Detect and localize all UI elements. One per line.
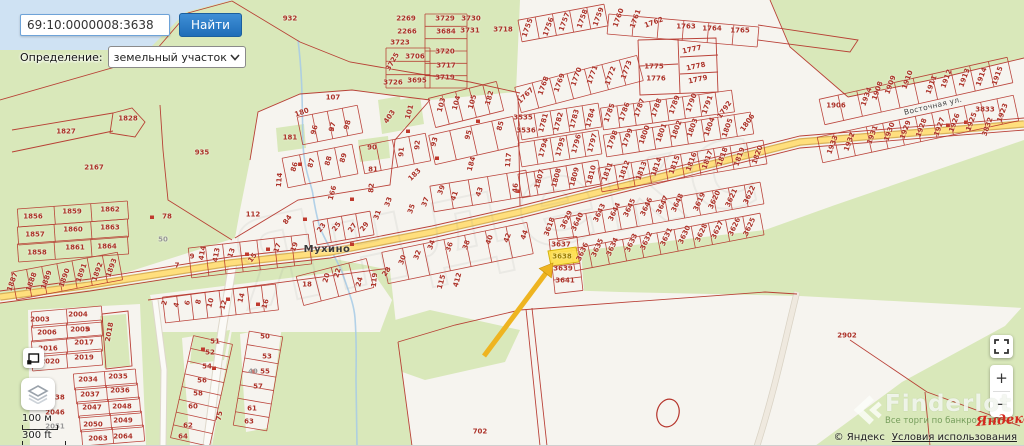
parcel-label: 1790	[685, 93, 698, 114]
parcel-label: 1809	[569, 167, 581, 188]
parcel-label: 3621	[725, 188, 740, 209]
parcel-label: 1794	[538, 138, 550, 159]
parcel-label: 932	[283, 16, 298, 23]
parcel-label: 1887	[6, 272, 19, 293]
parcel-label: 2047	[82, 405, 101, 412]
parcel-label: 35	[407, 203, 417, 215]
parcel-label: 27	[347, 222, 358, 234]
finderlot-watermark: Finderlot Все торги по банкротству	[851, 393, 1012, 427]
parcel-label: 56	[197, 378, 207, 385]
parcel-label: 1797	[587, 133, 599, 154]
parcel-label: 1806	[740, 113, 757, 133]
parcel-label: 1926	[948, 113, 961, 134]
parcel-label: 3632	[640, 231, 655, 252]
parcel-label: 2063	[88, 436, 107, 443]
parcel-label: 2048	[112, 404, 131, 411]
streets	[155, 262, 797, 446]
parcel-label: 114	[276, 172, 284, 187]
parcel-label: 1758	[576, 9, 589, 30]
parcel-label: 2034	[78, 377, 97, 384]
parcel-label: 1914	[975, 67, 988, 88]
parcel-label: 82	[368, 183, 376, 193]
pointer-arrow	[484, 263, 553, 356]
parcel-label: 1857	[25, 232, 44, 239]
parcel-label: 50	[260, 334, 270, 341]
parcel-label: 40	[485, 234, 495, 246]
open-land-patches	[28, 235, 584, 446]
parcel-label: 1804	[703, 117, 716, 138]
parcel-label: 3628	[695, 223, 710, 244]
parcel-label: 180	[294, 107, 310, 119]
parcel-label: 1858	[27, 250, 46, 257]
parcel-label: 3625	[743, 217, 758, 238]
parcel-label: 1856	[23, 214, 42, 221]
parcel-label: 29	[359, 221, 370, 233]
finderlot-tagline: Все торги по банкротству	[885, 416, 1012, 426]
parcel-label: 2902	[837, 333, 856, 340]
parcel-label: 1785	[603, 103, 616, 124]
parcel-label: 3646	[640, 197, 655, 218]
parcel-label: 88	[324, 155, 333, 166]
parcel-label: 1776	[646, 76, 665, 83]
parcel-label: 86	[290, 161, 299, 172]
scale-bar-metric	[22, 425, 58, 430]
stream	[298, 40, 357, 446]
scale-control: 100 м 300 ft	[22, 414, 66, 446]
terms-link[interactable]: Условия использования	[892, 432, 1017, 443]
parcel-label: 1783	[569, 109, 581, 130]
parcel-label: 60	[188, 404, 198, 411]
parcel-label: 96	[310, 124, 319, 135]
parcel-label: 51	[210, 339, 220, 346]
parcel-label: 412	[453, 272, 464, 288]
parcel-label: 1805	[721, 118, 734, 139]
parcel-label: 3719	[435, 75, 454, 82]
parcel-label: 1815	[668, 155, 681, 176]
parcel-label: 30	[398, 254, 408, 266]
parcel-label: 6	[184, 300, 192, 307]
parcel-label: 3706	[405, 54, 424, 61]
parcel-label: 1787	[633, 98, 646, 119]
parcel-label: 1934	[860, 87, 873, 108]
fullscreen-button[interactable]	[990, 335, 1013, 358]
parcel-label: 1813	[635, 161, 648, 182]
parcel-label: 182	[485, 90, 496, 106]
parcel-label: 1801	[655, 123, 668, 144]
parcel-label: 28	[381, 266, 392, 278]
parcel-label: 1908	[871, 81, 884, 102]
parcel-label: 49	[248, 369, 258, 376]
parcel-label: 87	[307, 157, 316, 168]
parcel-label: 2018	[105, 322, 115, 342]
parcel-label: 34	[427, 239, 437, 251]
main-road	[0, 124, 1024, 297]
measure-icon	[26, 351, 41, 366]
parcel-label: 3833	[975, 107, 994, 114]
parcel-label: 115	[437, 274, 448, 290]
parcel-label: 3634	[606, 237, 621, 258]
parcel-label: 1777	[682, 45, 703, 56]
parcel-label: 1862	[100, 207, 119, 214]
parcel-label: 90	[367, 145, 377, 152]
parcel-label: 1933	[826, 135, 839, 156]
parcel-label: 10	[206, 297, 215, 308]
parcel-label: 1775	[644, 64, 663, 71]
parcel-label: 37	[421, 196, 431, 208]
parcel-label: 101	[405, 104, 416, 120]
parcel-label: 3637	[551, 242, 570, 249]
parcel-label: 7	[175, 263, 180, 270]
buildings	[86, 120, 968, 374]
parcel-label: 1788	[650, 98, 663, 119]
parcel-label: 1812	[618, 160, 631, 181]
parcel-label: 1861	[65, 245, 84, 252]
definition-row: Определение: земельный участок	[20, 46, 246, 68]
parcel-label: 78	[162, 214, 172, 221]
parcel-label: 1932	[843, 132, 856, 153]
parcel-label: 3631	[660, 227, 675, 248]
town-label: Мухино	[304, 245, 351, 255]
parcel-label: 22	[333, 267, 342, 278]
highlighted-parcel-label: 3638	[552, 254, 571, 261]
parcel-label: 119	[371, 272, 379, 287]
parcel-label: 3640	[571, 212, 586, 233]
measure-area-button[interactable]	[23, 348, 44, 368]
parcel-label: 1800	[638, 125, 651, 146]
parcel-label: 1786	[618, 102, 631, 123]
parcel-label: 32	[413, 249, 423, 261]
parcel-label: 24	[355, 276, 364, 287]
parcel-label: 1803	[686, 118, 699, 139]
definition-label: Определение:	[20, 51, 103, 64]
parcel-label: 3647	[656, 195, 671, 216]
parcel-label: 2	[161, 300, 169, 307]
parcel-label: 3725	[385, 52, 401, 72]
parcel-label: 1756	[542, 17, 555, 38]
parcel-label: 1770	[570, 67, 583, 88]
parcel-label: 3639	[553, 266, 572, 273]
parcel-label: 1906	[826, 103, 845, 110]
chevron-down-icon	[230, 54, 240, 61]
parcel-label: 2036	[110, 388, 129, 395]
zoom-out-button[interactable]: −	[990, 392, 1013, 418]
parcel-label: 112	[246, 212, 261, 219]
parcel-label: 2049	[113, 418, 132, 425]
map-watermark: Яндекс	[217, 91, 776, 340]
parcel-label: 58	[193, 391, 203, 398]
parcel-label: 1860	[63, 227, 82, 234]
parcel-label: 92	[414, 140, 422, 150]
parcel-label: 3723	[390, 40, 409, 47]
parcel-label: 414	[198, 245, 207, 261]
parcel-label: 1819	[733, 147, 746, 168]
parcel-label: 1827	[56, 129, 75, 136]
parcel-label: 3695	[407, 78, 426, 85]
parcel-label: 2006	[37, 330, 56, 337]
parcel-label: 13	[227, 247, 237, 259]
parcel-label: 1755	[521, 18, 534, 39]
parcel-label: 64	[178, 434, 188, 441]
attribution-bar: © Яндекс Условия использования	[834, 432, 1017, 443]
parcel-label: 3635	[591, 238, 606, 259]
parcel-label: 14	[237, 292, 246, 303]
parcel-label: 2003	[30, 317, 49, 324]
parcel-label: 3633	[625, 233, 640, 254]
parcel-label: 3627	[711, 220, 726, 241]
parcel-label: 1909	[884, 75, 897, 96]
parcel-label: 9	[190, 254, 195, 261]
parcel-label: 2050	[83, 422, 102, 429]
parcel-label: 104	[452, 95, 463, 111]
parcel-label: 1817	[701, 150, 714, 171]
parcel-label: 1771	[586, 65, 599, 86]
parcel-label: 1915	[991, 66, 1004, 87]
parcel-label: 97	[328, 121, 337, 132]
parcel-label: 1928	[915, 118, 928, 139]
parcel-label: 3641	[555, 278, 574, 285]
parcel-label: 105	[468, 94, 479, 110]
parcel-label: 1859	[62, 209, 81, 216]
parcel-label: 184	[467, 156, 478, 172]
parcel-label: 1778	[686, 62, 707, 73]
parcel-label: 2035	[108, 374, 127, 381]
parcel-label: 3536	[516, 128, 535, 135]
parcel-label: 1892	[91, 262, 104, 283]
parcel-label: 935	[195, 150, 210, 157]
parcel-label: 3643	[593, 203, 608, 224]
parcel-label: 98	[343, 119, 352, 130]
parcel-label: 95	[464, 129, 473, 140]
highlight-parcel[interactable]	[548, 247, 579, 266]
oval-parcel	[654, 397, 682, 430]
parcel-label: 1782	[553, 112, 565, 133]
parcel-label: 3718	[493, 27, 512, 34]
parcel-label: 1763	[676, 24, 695, 31]
parcel-label: 4	[173, 302, 181, 309]
parcel-label: 1792	[717, 100, 734, 120]
parcel-label: 93	[430, 136, 439, 147]
parcel-label: 181	[283, 135, 298, 142]
parcel-label: 3684	[436, 29, 455, 36]
parcel-label: 2019	[74, 355, 93, 362]
copyright-text: © Яндекс	[834, 432, 885, 443]
parcel-label: 702	[473, 429, 488, 436]
parcel-label: 3618	[543, 217, 556, 238]
parcel-label: 1913	[958, 68, 971, 89]
parcel-label: 52	[205, 350, 215, 357]
parcel-label: 2167	[84, 165, 103, 172]
parcel-label: 3622	[743, 185, 758, 206]
parcel-label: 1925	[965, 112, 978, 133]
parcel-label: 103	[437, 97, 448, 113]
parcel-label: 1796	[571, 134, 583, 155]
parcel-label: 1810	[586, 165, 598, 186]
parcel-label: 2266	[397, 29, 416, 36]
parcel-label: 3720	[435, 49, 454, 56]
parcel-label: 1773	[620, 60, 633, 81]
parcel-label: 1798	[606, 130, 619, 151]
parcel-label: 1791	[701, 95, 714, 116]
parcel-label: 18	[302, 282, 312, 289]
parcel-label: 20	[322, 272, 331, 283]
parcel-label: 3629	[560, 210, 575, 231]
parcel-label: 1820	[751, 145, 764, 166]
parcel-label: 1781	[538, 113, 550, 134]
parcel-label: 1757	[558, 12, 571, 33]
definition-select[interactable]: земельный участок	[108, 46, 246, 68]
parcel-label: 55	[260, 369, 270, 376]
search-bar: Найти	[20, 13, 242, 37]
parcel-label: 39	[437, 184, 447, 196]
parcel-label: 1931	[866, 125, 879, 146]
parcel-label: 2064	[113, 434, 132, 441]
map-canvas[interactable]: Яндекс 932932182718282167935702290222692…	[0, 0, 1024, 446]
parcel-label: 2004	[68, 312, 87, 319]
parcel-label: 81	[368, 167, 378, 174]
parcel-label: 1802	[670, 120, 683, 141]
parcel-label: 1807	[534, 169, 546, 190]
parcel-label: 3726	[383, 80, 402, 87]
parcel-label: 1760	[612, 8, 625, 29]
parcel-label: 1808	[551, 168, 563, 189]
parcel-label: 3648	[671, 193, 686, 214]
parcel-label: 1799	[621, 128, 634, 149]
zoom-in-button[interactable]: +	[990, 365, 1013, 391]
scale-metric: 100 м	[22, 414, 66, 425]
parcel-label: 413	[212, 247, 221, 263]
parcel-label: 1772	[604, 66, 617, 87]
parcel-label: 1863	[100, 225, 119, 232]
parcel-label: 61	[247, 406, 257, 413]
parcel-label: 1888	[25, 272, 38, 293]
search-button[interactable]: Найти	[179, 13, 242, 37]
parcel-label: 1765	[730, 28, 749, 35]
parcel-label: 23	[316, 222, 327, 234]
zoom-control: + −	[990, 365, 1013, 417]
parcel-label: 16	[261, 298, 270, 309]
parcel-label: 1890	[58, 268, 71, 289]
parcel-label: 1764	[702, 26, 721, 33]
parcel-label: 12	[219, 299, 228, 310]
parcel-label: 1779	[688, 75, 709, 86]
parcel-label: 54	[202, 364, 212, 371]
parcel-label: 3620	[708, 190, 723, 211]
parcel-label: 1930	[883, 122, 896, 143]
parcel-label: 3630	[678, 225, 693, 246]
parcel-label: 1789	[668, 95, 681, 116]
parcel-label: 62	[183, 423, 193, 430]
parcel-label: 1818	[716, 147, 729, 168]
parcel-label: 1768	[537, 76, 550, 97]
parcel-label: 84	[282, 214, 293, 226]
parcel-label: 1795	[555, 137, 567, 158]
parcel-label: 89	[339, 152, 348, 163]
parcel-label: 1761	[629, 9, 642, 30]
parcel-label: 1759	[592, 7, 605, 28]
parcel-label: 1923	[996, 103, 1009, 124]
parcel-label: 63	[244, 419, 254, 426]
parcel-label: 1927	[933, 117, 946, 138]
parcel-label: 1893	[105, 258, 118, 279]
parcel-label: 1816	[685, 152, 698, 173]
parcel-label: 3731	[460, 28, 479, 35]
parcel-label: 183	[407, 167, 422, 182]
parcel-label: 1864	[97, 244, 116, 251]
layers-icon	[27, 384, 49, 404]
parcel-label: 8	[195, 299, 203, 306]
parcel-label: 75	[216, 411, 225, 422]
parcel-label: 1828	[118, 116, 137, 123]
parcel-label: 1762	[644, 16, 665, 29]
scale-imperial: 300 ft	[22, 431, 66, 442]
parcel-label: 1929	[899, 120, 912, 141]
parcel-label: 85	[496, 120, 505, 131]
parcel-label: 3645	[623, 198, 638, 219]
parcel-label: 1891	[75, 263, 88, 284]
parcel-label: 15	[247, 252, 258, 264]
parcel-label: 33	[384, 196, 394, 208]
parcel-label: 2005	[70, 327, 89, 334]
parcel-label: 53	[262, 354, 272, 361]
parcel-label: 3717	[436, 63, 455, 70]
parcel-label: 166	[328, 185, 339, 201]
parcel-label: 2017	[74, 340, 93, 347]
parcel-label: 19	[290, 241, 300, 253]
parcel-label: 3832	[981, 117, 994, 138]
finderlot-logo-icon	[851, 393, 883, 427]
search-input[interactable]	[20, 14, 170, 36]
street-label: Восточная ул.	[903, 96, 962, 117]
parcel-label: 117	[505, 152, 513, 167]
parcel-label: 3636	[576, 242, 591, 263]
parcel-label: 1767	[517, 87, 536, 106]
parcel-label: 50	[158, 237, 168, 244]
parcel-label: 41	[450, 190, 460, 202]
parcel-label: 46	[512, 183, 520, 193]
green-parcels	[22, 96, 424, 368]
parcel-label: 57	[253, 384, 263, 391]
parcel-label: 1910	[901, 70, 914, 91]
parcel-label: 1911	[925, 75, 938, 96]
parcel-label: 1784	[585, 108, 597, 129]
parcel-label: 3730	[461, 16, 480, 23]
parcel-label: 1811	[601, 162, 614, 183]
parcel-label: 1769	[553, 73, 566, 94]
parcel-label: 2037	[80, 392, 99, 399]
parcel-label: 42	[503, 232, 513, 244]
layers-button[interactable]	[21, 378, 55, 410]
parcel-label: 91	[398, 147, 406, 157]
parcel-label: 44	[520, 229, 530, 241]
parcel-label: 107	[326, 95, 341, 102]
parcel-label: 2269	[396, 16, 415, 23]
parcel-label: 36	[445, 241, 455, 253]
parcel-rows	[11, 4, 1018, 446]
parcel-label: 43	[475, 186, 485, 198]
fullscreen-icon	[994, 339, 1009, 354]
parcel-label: 3535	[513, 115, 532, 122]
definition-value: земельный участок	[114, 51, 227, 64]
parcel-label: 3644	[608, 202, 623, 223]
parcel-label: 17	[273, 242, 283, 254]
parcel-label: 403	[383, 109, 397, 125]
parcel-label: 1912	[940, 69, 953, 90]
parcel-label: 31	[373, 209, 383, 221]
parcel-label: 1814	[650, 157, 663, 178]
parcel-label: 1889	[40, 270, 53, 291]
parcel-label: 38	[462, 239, 472, 251]
parcel-label: 25	[331, 221, 342, 233]
